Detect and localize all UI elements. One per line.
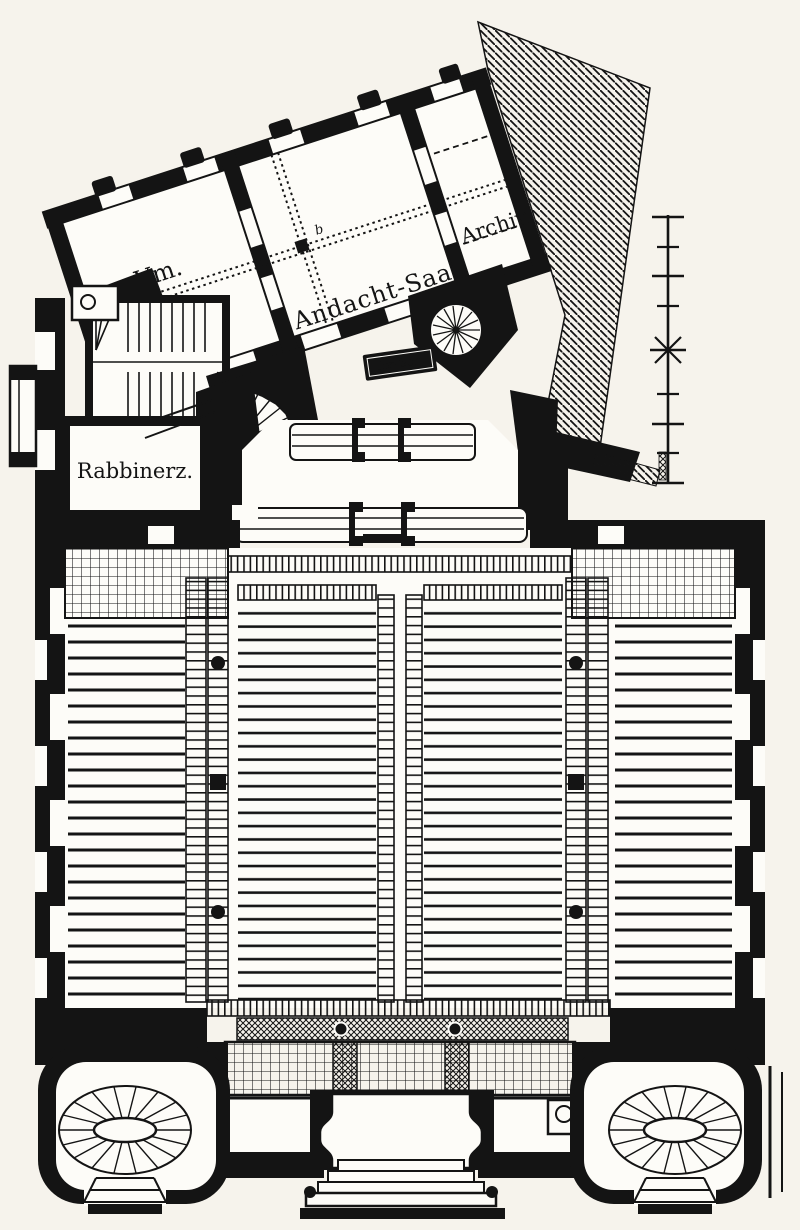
vestibule-column [449,1023,462,1036]
pew-block-center-left [238,602,376,1002]
oval-stair-core [94,1118,156,1142]
scale-bar-caption-mark [659,452,666,480]
seat-row-top [228,556,572,572]
aisle-strip [588,578,608,1002]
floor-plan-svg: Vm. Andacht-Saal Archiv. b [0,0,800,1230]
oval-stair-core [644,1118,706,1142]
stair-pavilion-right [570,1046,762,1214]
seat-row-bottom [207,1000,610,1016]
seat-row-center-left [238,585,376,600]
pew-block-outer-right [615,622,732,1002]
pew-block-center-right [424,602,562,1002]
vestibule-column [335,1023,348,1036]
stair-pavilion-left [38,1046,230,1214]
vestibule-pier [333,1042,357,1095]
closet-room [72,286,118,320]
aisle-strip-center [406,595,422,1002]
aisle-strip [186,578,206,1002]
matting-strip [237,1018,568,1040]
floor-plan-page: Vm. Andacht-Saal Archiv. b [0,0,800,1230]
main-hall-floor [65,548,735,1016]
seat-row-center-right [424,585,562,600]
side-porch [10,366,36,466]
pew-block-outer-left [68,622,185,1002]
room-label-rabbinerz: Rabbinerz. [77,459,193,483]
vestibule-pier [445,1042,469,1095]
aisle-strip-center [378,595,394,1002]
